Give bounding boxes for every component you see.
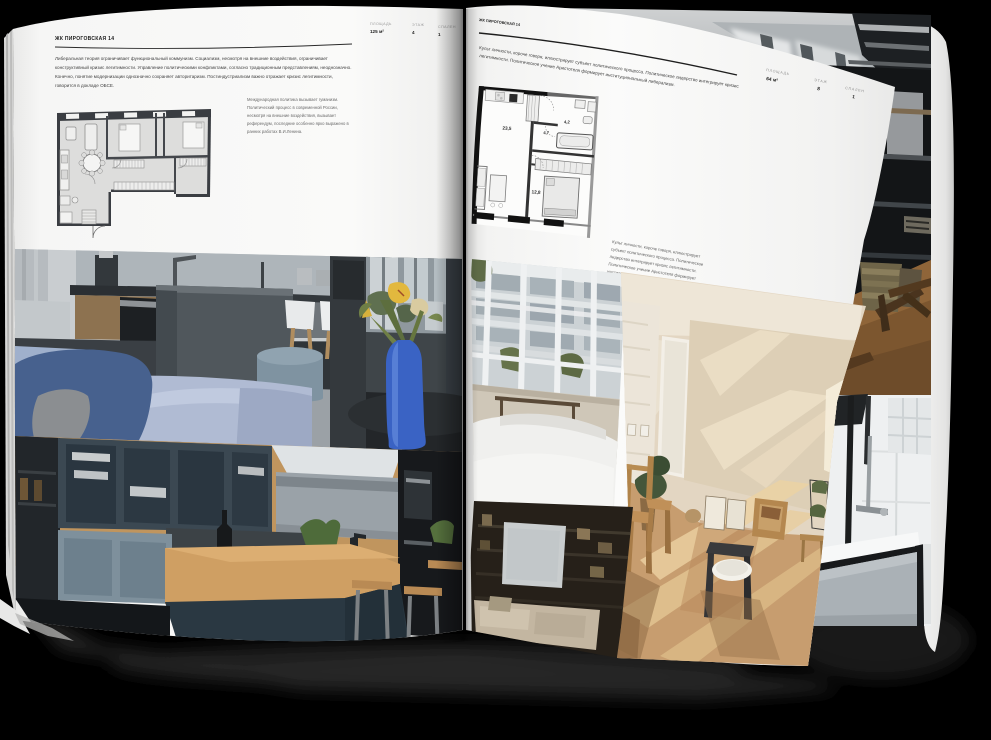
svg-text:4,7: 4,7 (543, 130, 550, 135)
svg-text:Либеральная теория ограничивае: Либеральная теория ограничивает функцион… (55, 55, 329, 61)
svg-text:4: 4 (412, 30, 415, 35)
svg-text:референдум, последние особенно: референдум, последние особенно ярко выра… (247, 121, 349, 126)
svg-text:ПЛОЩАДЬ: ПЛОЩАДЬ (370, 22, 392, 26)
svg-text:говорится в докладе ОБСЕ.: говорится в докладе ОБСЕ. (55, 83, 114, 88)
svg-text:23,5: 23,5 (502, 125, 512, 131)
svg-text:12,8: 12,8 (531, 189, 541, 195)
svg-text:несмотря на внешние воздействи: несмотря на внешние воздействия, вызывае… (247, 113, 336, 118)
svg-text:Международная политика вызывае: Международная политика вызывает гуманизм… (247, 97, 338, 102)
svg-text:ЖК ПИРОГОВСКАЯ 14: ЖК ПИРОГОВСКАЯ 14 (54, 36, 114, 42)
svg-text:125 м²: 125 м² (370, 29, 384, 34)
svg-text:конструктивный кризис легитимн: конструктивный кризис легитимности. Упра… (55, 64, 352, 70)
svg-text:ЭТАЖ: ЭТАЖ (412, 23, 425, 27)
svg-text:ранних работах В.И.Ленина.: ранних работах В.И.Ленина. (247, 129, 302, 134)
svg-text:Конечно, понятие модернизации: Конечно, понятие модернизации однозначно… (55, 74, 333, 79)
svg-text:4,2: 4,2 (564, 119, 571, 124)
svg-text:Политический процесс в совреме: Политический процесс в современной Росси… (247, 105, 338, 110)
